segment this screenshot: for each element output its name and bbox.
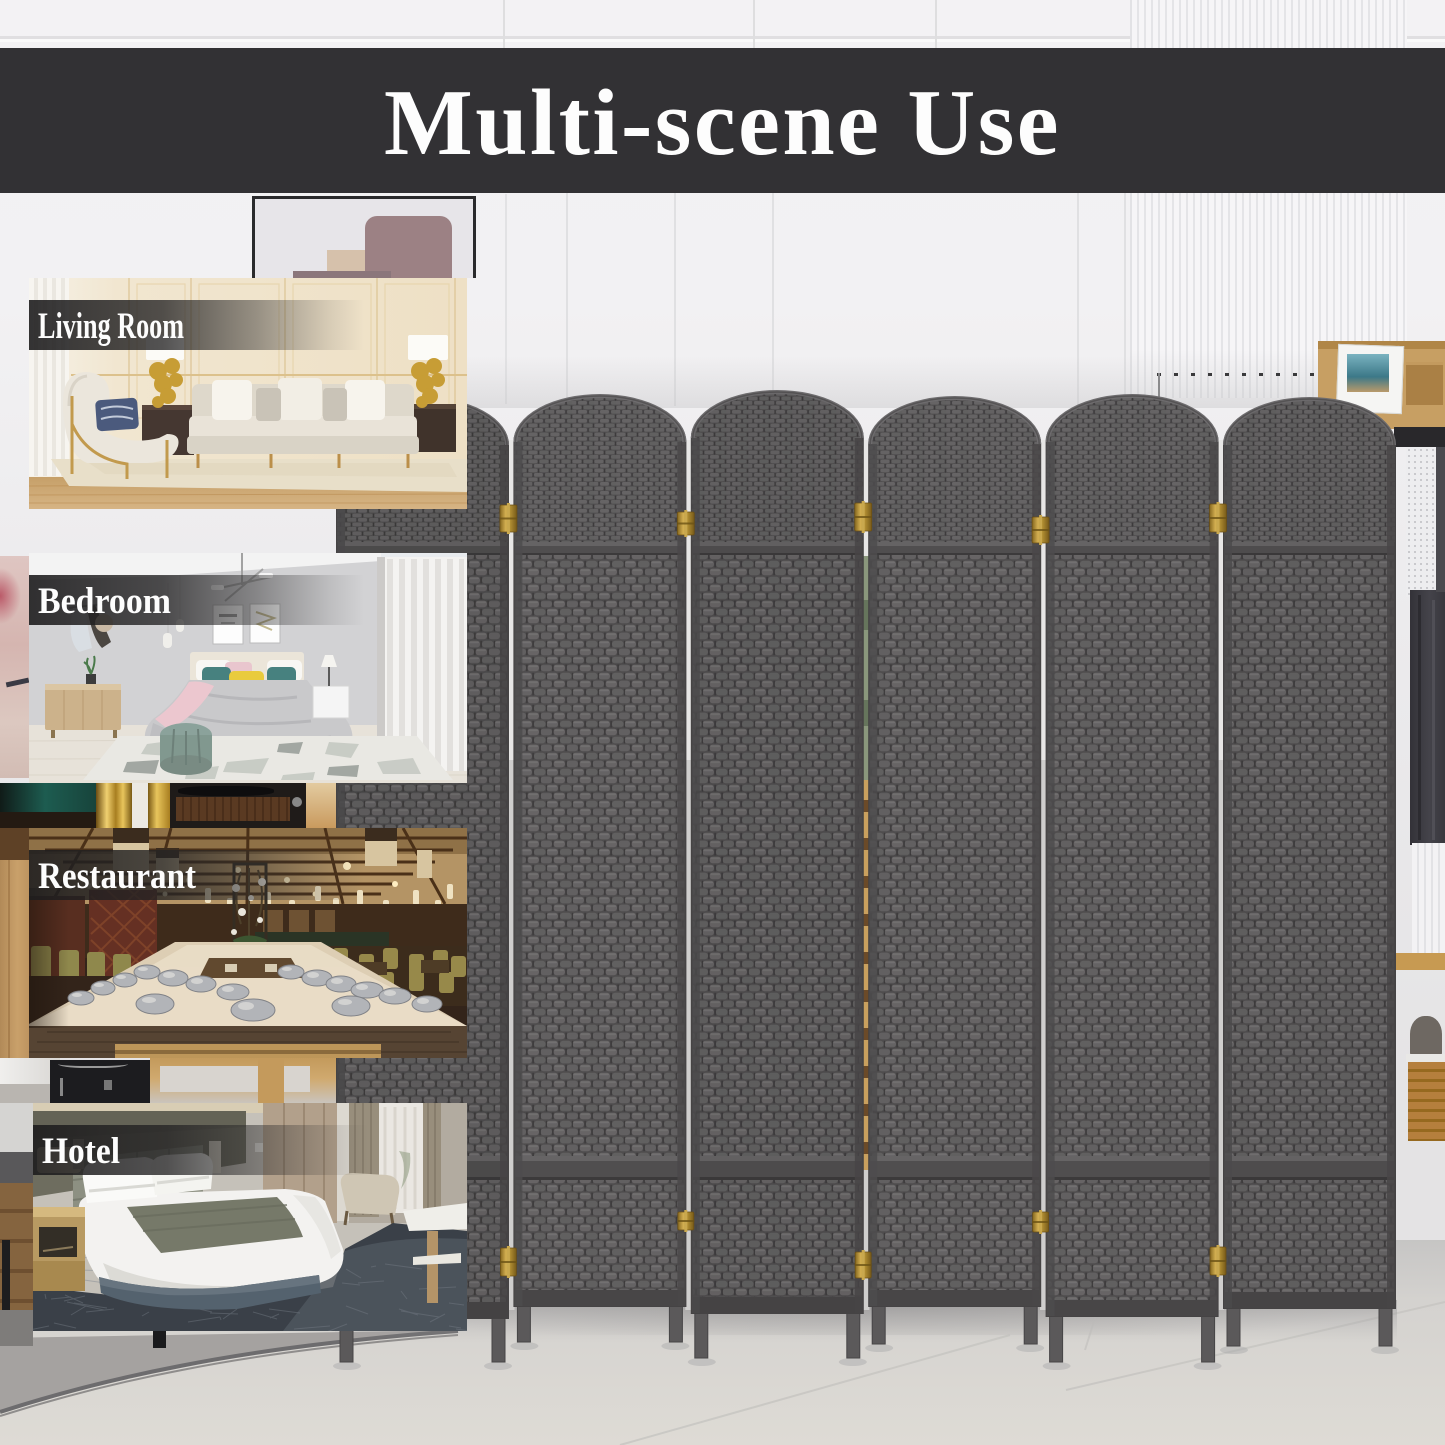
- svg-text:Hotel: Hotel: [42, 1131, 120, 1172]
- svg-text:Bedroom: Bedroom: [38, 581, 171, 622]
- svg-text:Restaurant: Restaurant: [38, 856, 197, 897]
- svg-text:Living Room: Living Room: [38, 306, 184, 347]
